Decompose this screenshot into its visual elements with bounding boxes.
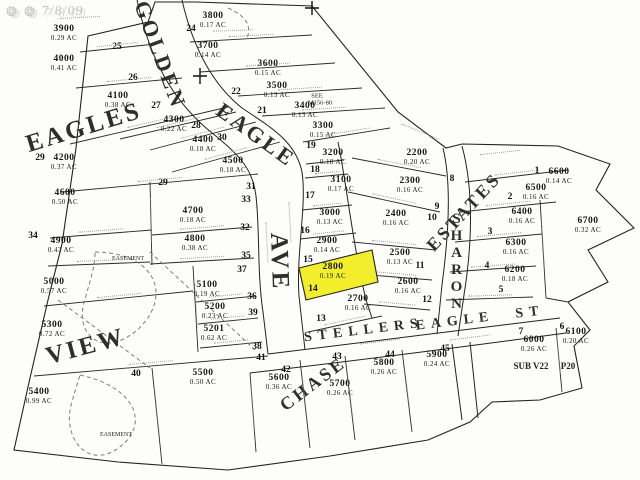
- parcel-line: [306, 160, 344, 164]
- parcel-line: [455, 234, 542, 242]
- lot-corner-number: 7: [519, 327, 524, 337]
- parcel-line: [150, 258, 254, 264]
- watermark: ❂ ❂ 7/8/09: [6, 4, 84, 20]
- lot-corner-number: 12: [422, 295, 432, 305]
- lot-corner-number: 27: [151, 101, 161, 111]
- lot-corner-number: 1: [535, 166, 540, 176]
- lot-corner-number: 44: [385, 350, 395, 360]
- parcel-line: [352, 158, 446, 176]
- lot-corner-number: 24: [186, 24, 196, 34]
- lot-corner-number: 22: [231, 87, 241, 97]
- lot-corner-number: 38: [252, 342, 262, 352]
- lot-corner-number: 11: [416, 261, 425, 271]
- map-note: M156-80: [308, 100, 332, 107]
- lot-corner-number: 17: [305, 191, 315, 201]
- lot-corner-number: 8: [450, 174, 455, 184]
- parcel-line: [262, 108, 385, 116]
- lot-corner-number: 13: [316, 314, 326, 324]
- map-note: P20: [561, 361, 576, 371]
- parcel-line: [50, 230, 152, 238]
- rosette-icon: ❂ ❂: [6, 4, 37, 20]
- lot-corner-number: 19: [306, 141, 316, 151]
- map-note: EASEMENT: [100, 432, 132, 438]
- lot-corner-number: 40: [131, 369, 141, 379]
- lot-corner-number: 6: [560, 322, 565, 332]
- parcel-line: [238, 88, 362, 96]
- lot-corner-number: 9: [435, 202, 440, 212]
- lot-corner-number: 33: [241, 195, 251, 205]
- map-note: SUB V22: [513, 361, 548, 371]
- lot-corner-number: 37: [237, 265, 247, 275]
- lot-corner-number: 35: [241, 251, 251, 261]
- lot-corner-number: 34: [28, 231, 38, 241]
- parcel-line: [352, 242, 436, 250]
- lot-corner-number: 2: [508, 192, 513, 202]
- street-label-sharon: SHARON: [448, 211, 465, 313]
- map-note: SEE: [311, 93, 323, 100]
- lot-corner-number: 39: [248, 308, 258, 318]
- parcel-line: [546, 298, 568, 302]
- parcel-line: [302, 205, 352, 210]
- parcel-line: [198, 318, 258, 324]
- lot-corner-number: 28: [191, 121, 201, 131]
- lot-corner-number: 14: [308, 284, 318, 294]
- lot-corner-number: 21: [257, 106, 267, 116]
- lot-corner-number: 16: [300, 226, 310, 236]
- lot-corner-number: 15: [303, 255, 313, 265]
- lot-corner-number: 41: [256, 353, 266, 363]
- lot-corner-number: 36: [247, 292, 257, 302]
- lot-corner-number: 5: [499, 285, 504, 295]
- plat-map: 39000.29 AC38000.17 AC37000.14 AC36000.1…: [0, 0, 640, 480]
- lot-corner-number: 45: [440, 344, 450, 354]
- watermark-date: 7/8/09: [42, 4, 84, 20]
- parcel-line: [348, 192, 440, 212]
- lot-corner-number: 32: [240, 223, 250, 233]
- lot-corner-number: 31: [246, 182, 256, 192]
- lot-corner-number: 42: [281, 365, 291, 375]
- parcel-line: [364, 304, 430, 310]
- plat-lines-svg: [0, 0, 640, 480]
- parcel-line: [48, 262, 150, 266]
- parcel-line: [190, 35, 312, 42]
- lot-corner-number: 30: [217, 133, 227, 143]
- parcel-line: [44, 291, 193, 306]
- lot-corner-number: 10: [427, 213, 437, 223]
- street-edges: [137, 0, 566, 420]
- parcel-line: [152, 227, 252, 235]
